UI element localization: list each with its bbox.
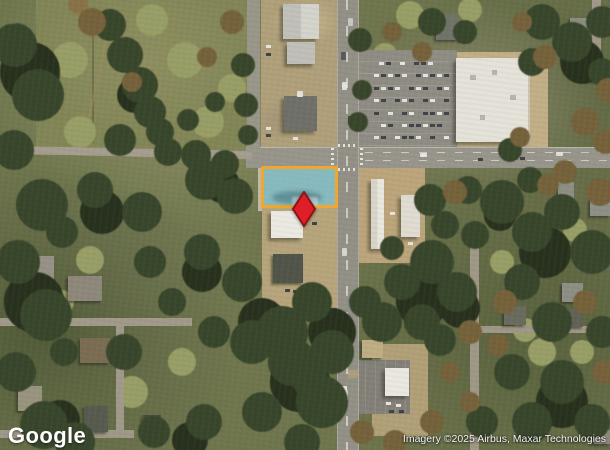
church-building-north [283,4,319,39]
house-roof [436,14,458,40]
highway-lane-line [365,160,610,161]
upper-left-road [247,0,260,152]
church-building-mid [287,42,315,64]
rooftop-unit [470,75,476,80]
br-street-vertical [470,236,479,450]
vehicle [348,300,353,308]
house-roof [584,62,602,81]
vehicle [342,248,347,256]
house-roof [596,320,610,332]
vehicle [348,18,353,26]
house-roof [562,283,583,302]
house-roof [18,386,42,411]
google-logo[interactable]: Google [8,423,86,449]
house-roof [540,256,556,269]
bl-street-vertical [116,322,124,438]
rooftop-unit [510,95,516,100]
house-roof [459,28,472,41]
house-roof [80,338,110,363]
marker-diamond-shape [293,192,315,226]
main-road [337,0,359,450]
crosswalk [338,168,356,171]
vehicle [348,116,353,124]
open-field [36,0,248,154]
crosswalk [360,148,363,167]
location-marker-icon[interactable] [286,188,322,232]
house-roof [68,276,102,301]
commercial-driveway [348,370,358,378]
house-roof [488,196,506,220]
autumn-tree-layer [0,0,24,24]
storage-building-2 [401,195,420,237]
field-fence-line [92,8,94,143]
house-roof [570,18,589,34]
crosswalk [331,148,334,167]
br-street-horizontal [478,326,610,333]
vehicle [342,82,347,90]
church-building-south [284,96,317,131]
vehicle [420,153,427,157]
rooftop-unit [492,70,497,75]
commercial-building-tan [362,340,383,358]
house-roof [273,254,303,283]
tr-street-vertical [592,0,601,56]
house-roof [590,198,610,216]
parking-lot [357,50,457,150]
vehicle [341,52,346,60]
vehicle [556,152,563,156]
cross-highway [246,147,610,168]
rooftop-unit [480,115,485,120]
crosswalk [338,144,356,147]
house-roof [558,182,574,202]
highway-lane-line [365,152,610,153]
house-roof [24,256,54,283]
house-roof [84,406,108,432]
church-steeple [297,91,303,97]
house-roof [143,415,161,435]
commercial-building-white [385,368,409,396]
house-roof [573,40,589,52]
house-roof [566,309,583,327]
map-attribution: Imagery ©2025 Airbus, Maxar Technologies [403,433,606,445]
vehicle [340,386,347,396]
bl-street-horizontal [0,318,192,326]
storage-building-long [371,179,384,249]
house-roof [504,306,526,325]
map-canvas[interactable]: Google Imagery ©2025 Airbus, Maxar Techn… [0,0,610,450]
main-road-centerline [346,0,348,450]
